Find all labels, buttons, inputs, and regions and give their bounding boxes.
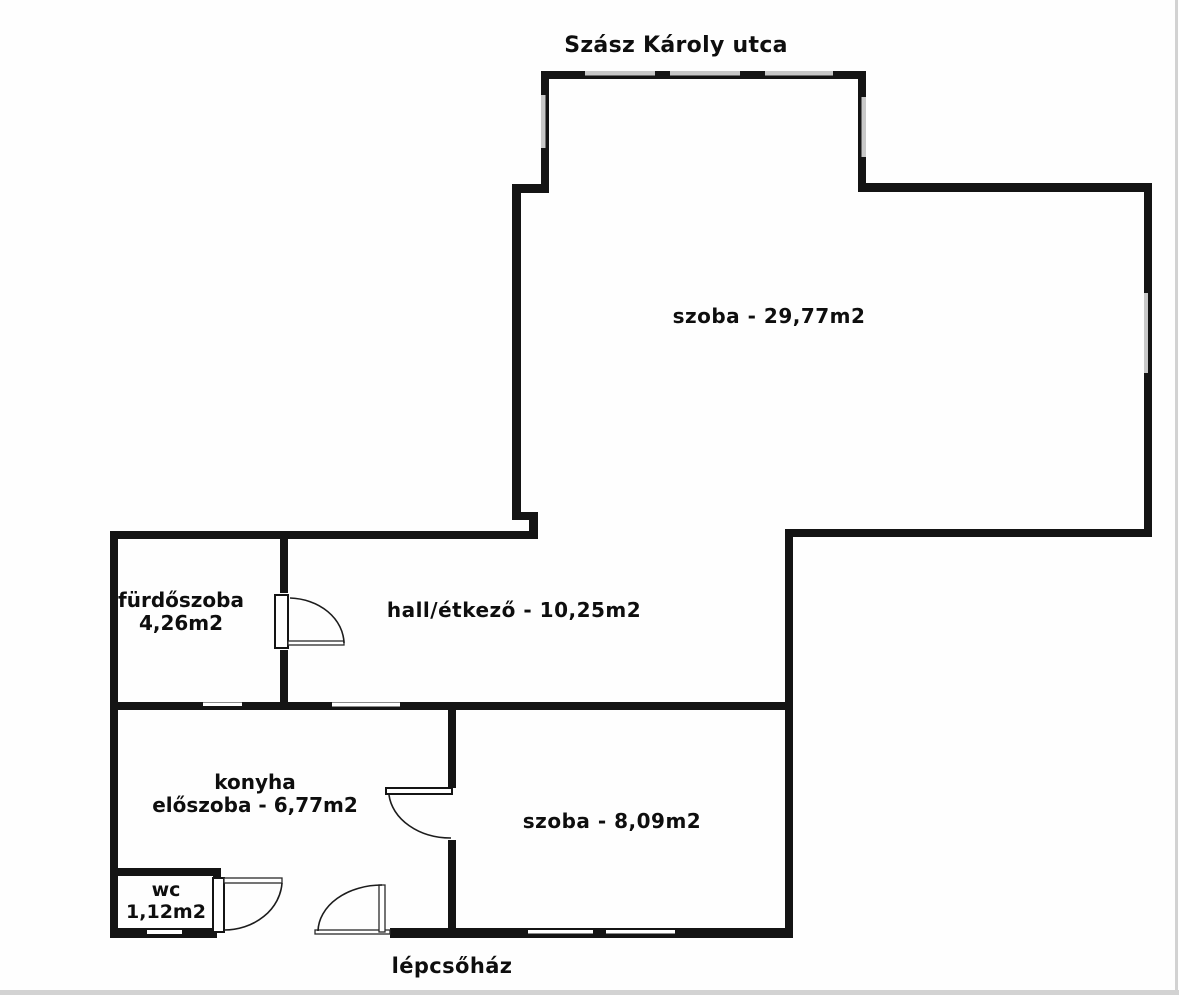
room-name: wc [126, 879, 206, 901]
room-label-bathroom: fürdőszoba 4,26m2 [118, 589, 244, 635]
room-label-kitchen: konyha előszoba - 6,77m2 [152, 771, 358, 817]
window [1144, 293, 1148, 373]
window [147, 930, 182, 934]
room-area: 1,12m2 [126, 901, 206, 923]
window [528, 930, 593, 934]
kitchen-door [386, 788, 452, 838]
room-label-wc: wc 1,12m2 [126, 879, 206, 923]
entrance-door-right [315, 885, 390, 934]
window [862, 97, 867, 157]
image-edge-bottom [0, 990, 1179, 995]
window [606, 930, 675, 934]
room-name: konyha [152, 771, 358, 794]
floor-plan: Szász Károly utca szoba - 29,77m2 fürdős… [0, 0, 1179, 1000]
window [332, 703, 400, 707]
window [670, 71, 740, 76]
room-label-hall: hall/étkező - 10,25m2 [387, 598, 641, 622]
bathroom-door [275, 595, 344, 648]
room-name: fürdőszoba [118, 589, 244, 612]
staircase-label: lépcsőház [392, 954, 513, 978]
window [203, 703, 242, 707]
window [765, 71, 833, 76]
room-area: 4,26m2 [118, 612, 244, 635]
entrance-door-left [213, 878, 282, 932]
room-label-small-room: szoba - 8,09m2 [523, 809, 701, 833]
window [541, 95, 546, 148]
street-label: Szász Károly utca [564, 33, 788, 58]
room-area: előszoba - 6,77m2 [152, 794, 358, 817]
room-label-large-room: szoba - 29,77m2 [673, 304, 866, 328]
window [585, 71, 655, 76]
floor-plan-drawing [0, 0, 1179, 1000]
doors-layer [213, 595, 452, 934]
image-edge-right [1175, 0, 1178, 995]
